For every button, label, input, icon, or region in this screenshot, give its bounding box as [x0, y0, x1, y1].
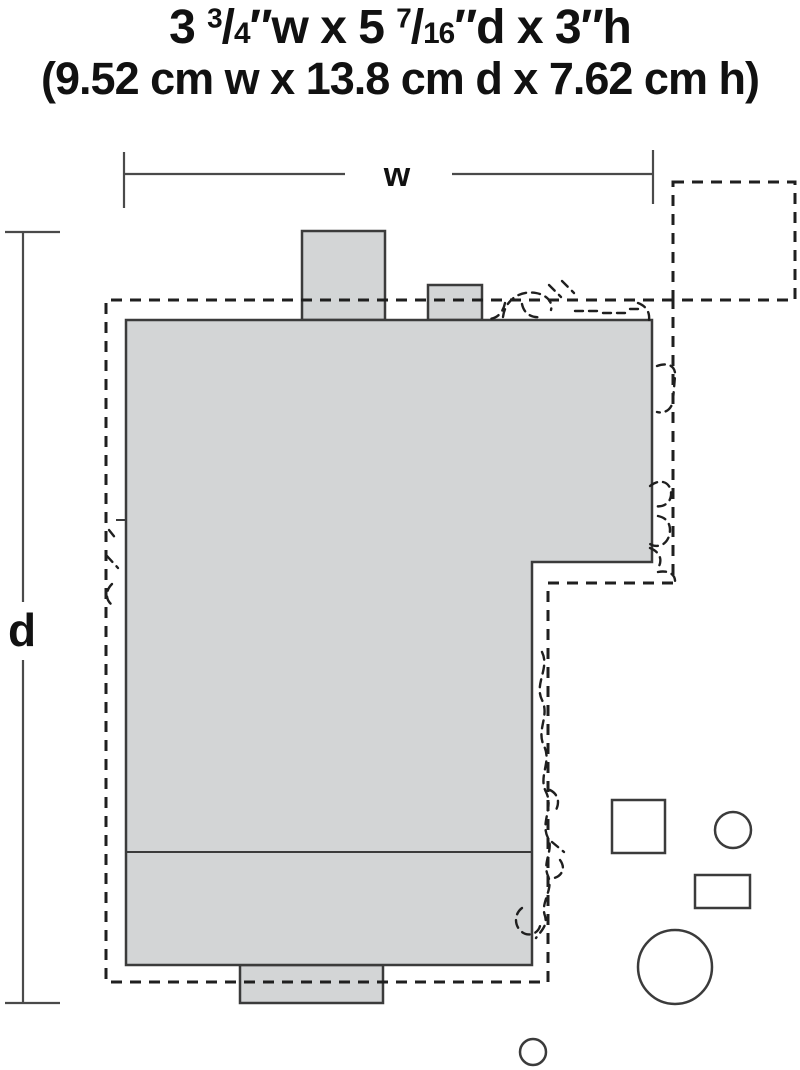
- large-circle-marker: [638, 930, 712, 1004]
- scatter-shapes: [520, 800, 751, 1065]
- d-dimension: d: [5, 232, 60, 1003]
- d-dim-label: d: [8, 604, 36, 656]
- rect-marker: [695, 875, 750, 908]
- w-dim-label: w: [383, 156, 411, 194]
- w-dimension: w: [124, 150, 653, 208]
- tiny-circle-marker: [520, 1039, 546, 1065]
- small-circle-marker: [715, 812, 751, 848]
- building-footprint: [116, 231, 652, 1003]
- bottom-tab: [240, 965, 383, 1003]
- dashed-annex-box: [673, 182, 795, 300]
- footprint-diagram-svg: w d: [0, 0, 800, 1070]
- top-tab-small: [428, 285, 482, 320]
- square-marker: [612, 800, 665, 853]
- top-tab-large: [302, 231, 385, 320]
- footprint-shape: [126, 320, 652, 965]
- product-dimension-diagram: 3 3/4″w x 5 7/16″d x 3″h (9.52 cm w x 13…: [0, 0, 800, 1070]
